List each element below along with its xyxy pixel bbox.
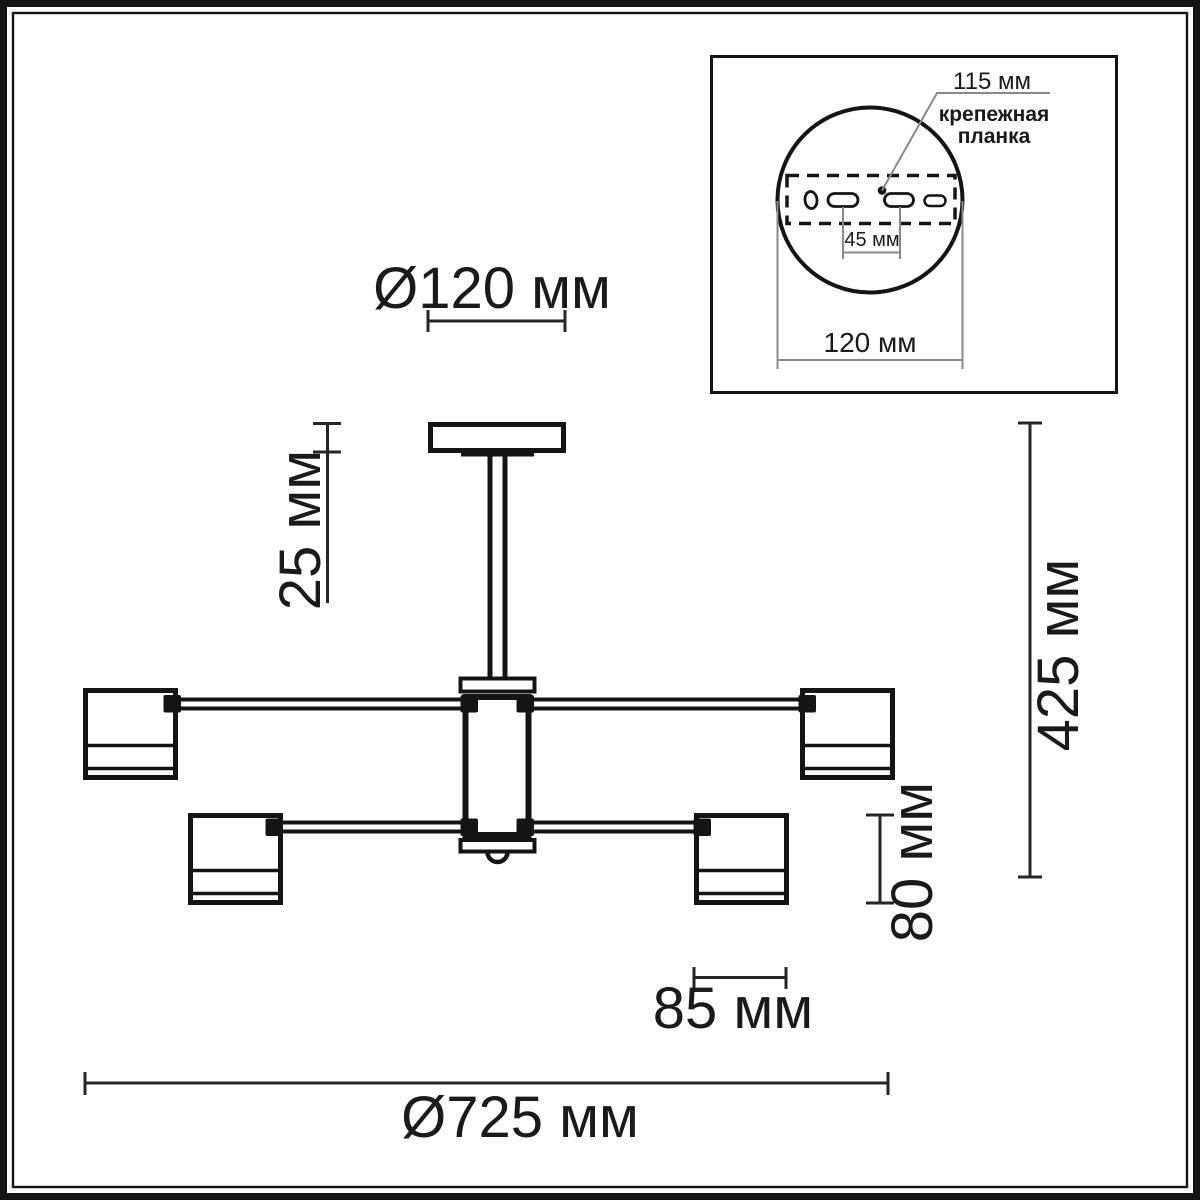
dim-hole-spacing: 45 мм	[843, 207, 900, 259]
connector-shade-lower-left	[266, 819, 284, 837]
canopy-height-label: 25 мм	[268, 450, 333, 610]
connector-shade-lower-right	[694, 819, 712, 837]
slot-hole-right	[885, 194, 914, 207]
body-top-cap	[461, 679, 535, 692]
mounting-plate-inset: 115 мм крепежная планка 45 мм 120 мм	[712, 57, 1117, 393]
canopy-plate	[431, 425, 564, 451]
overall-height-label: 425 мм	[1026, 559, 1091, 752]
mounting-bracket-dashed-outline	[787, 176, 955, 224]
bracket-name-line2: планка	[958, 125, 1031, 148]
body-bottom-cap	[461, 840, 535, 852]
round-hole	[804, 191, 818, 209]
stem	[490, 456, 505, 680]
dim-shade-diameter: 85 мм	[653, 967, 813, 1041]
shade-outline	[86, 691, 176, 778]
connector-shade-upper-left	[164, 695, 182, 713]
shade-upper-left	[84, 691, 177, 778]
dim-shade-height: 80 мм	[866, 782, 945, 942]
bracket-callout: 115 мм крепежная планка	[878, 68, 1050, 195]
hole-spacing-label: 45 мм	[844, 229, 899, 251]
connector-body-lower-left	[461, 819, 479, 837]
dimensions: Ø120 мм 25 мм 425 мм 80 мм	[85, 256, 1091, 1150]
dim-overall-height: 425 мм	[1018, 423, 1091, 877]
dim-overall-diameter: Ø725 мм	[85, 1072, 888, 1150]
overall-diameter-label: Ø725 мм	[401, 1085, 639, 1150]
canopy-diameter-label: Ø120 мм	[373, 256, 611, 321]
dim-base-diameter: 120 мм	[778, 201, 963, 369]
connector-shade-upper-right	[799, 695, 817, 713]
bracket-name-line1: крепежная	[939, 103, 1050, 126]
slot-hole-outer	[925, 196, 946, 207]
page-frame	[4, 4, 1197, 1197]
connector-body-lower-right	[517, 819, 535, 837]
frame-outer-band	[4, 4, 1197, 1197]
bracket-length-label: 115 мм	[953, 68, 1031, 95]
chandelier-side-view	[84, 425, 894, 903]
slot-hole-left	[828, 194, 858, 207]
ceiling-canopy	[431, 425, 564, 457]
dim-canopy-height: 25 мм	[268, 424, 341, 611]
connector-body-upper-right	[517, 695, 535, 713]
chandelier-technical-drawing: 115 мм крепежная планка 45 мм 120 мм	[0, 0, 1200, 1200]
base-diameter-label: 120 мм	[824, 327, 917, 358]
arms	[172, 700, 805, 832]
connector-body-upper-left	[461, 695, 479, 713]
dim-canopy-diameter: Ø120 мм	[373, 256, 611, 332]
body-column	[466, 697, 529, 835]
canopy-flange	[461, 449, 534, 457]
shade-diameter-label: 85 мм	[653, 976, 813, 1041]
shade-height-label: 80 мм	[880, 782, 945, 942]
drawing-canvas: 115 мм крепежная планка 45 мм 120 мм	[0, 0, 1200, 1200]
frame-inner-line	[13, 13, 1187, 1187]
